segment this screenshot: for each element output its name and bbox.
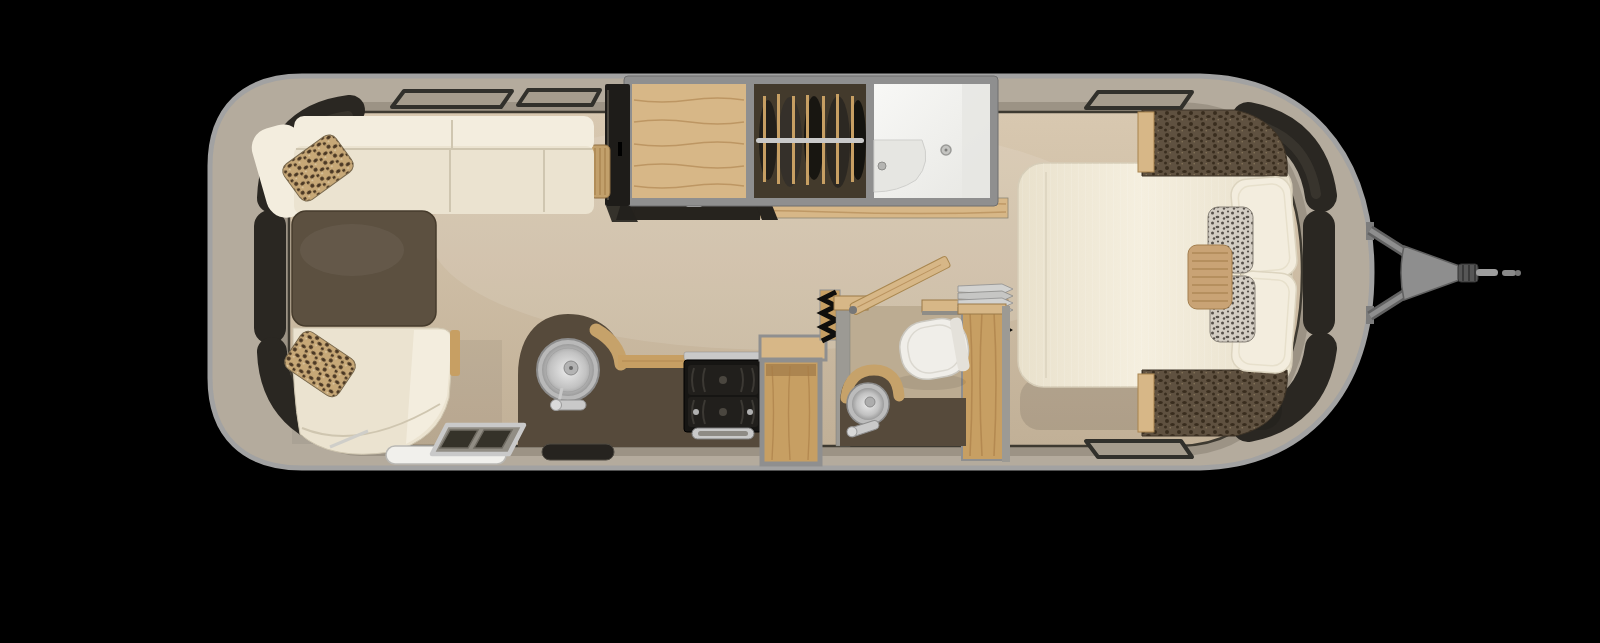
bedroom-roof-window	[1086, 441, 1192, 457]
tan-lumbar-pillow	[1188, 245, 1232, 309]
drain-center	[945, 149, 948, 152]
shower-wall-shade	[962, 84, 990, 198]
roof-edge-window	[518, 90, 600, 105]
shower-valve	[878, 162, 886, 170]
stove-knob	[747, 409, 753, 415]
two-burner-stove	[684, 360, 762, 439]
roof-edge-window	[392, 91, 512, 107]
floor-vent	[542, 444, 614, 460]
stove-knob	[693, 409, 699, 415]
vanity-sink-knob	[865, 397, 875, 407]
bath-right-wall	[1002, 306, 1010, 462]
cabinet-handle	[618, 142, 622, 156]
handle-slot	[698, 431, 748, 436]
hitch-jack-rod	[1476, 269, 1498, 276]
knob-dot	[569, 366, 573, 370]
overhead-modules	[624, 76, 998, 206]
shower-stall	[874, 84, 990, 198]
rod-end	[1515, 270, 1521, 276]
stove-back-ledge	[684, 352, 762, 360]
wardrobe-closet	[754, 84, 866, 198]
rod-tip	[1502, 270, 1516, 276]
trailer-floorplan	[0, 0, 1600, 643]
table-sheen	[300, 224, 404, 276]
wood-countertop	[760, 336, 826, 360]
open-shelf-cabinet	[760, 336, 826, 464]
wood-trim-panel	[1138, 374, 1154, 432]
slide-out-dresser	[632, 84, 746, 198]
closet-rod	[756, 138, 864, 143]
wood-trim-panel	[1138, 112, 1154, 172]
floorplan-canvas	[0, 0, 1600, 643]
burner-center	[719, 408, 727, 416]
burner-center	[719, 376, 727, 384]
column-cap	[958, 304, 1006, 314]
round-sink	[537, 339, 599, 401]
hitch-a-frame	[1366, 222, 1521, 324]
door-hinge	[849, 306, 857, 314]
bench-wood-trim	[450, 330, 460, 376]
bedroom-roof-window	[1086, 92, 1192, 108]
column-body	[962, 308, 1004, 460]
hitch-tongue	[1401, 246, 1466, 300]
faucet-knob	[551, 400, 562, 411]
